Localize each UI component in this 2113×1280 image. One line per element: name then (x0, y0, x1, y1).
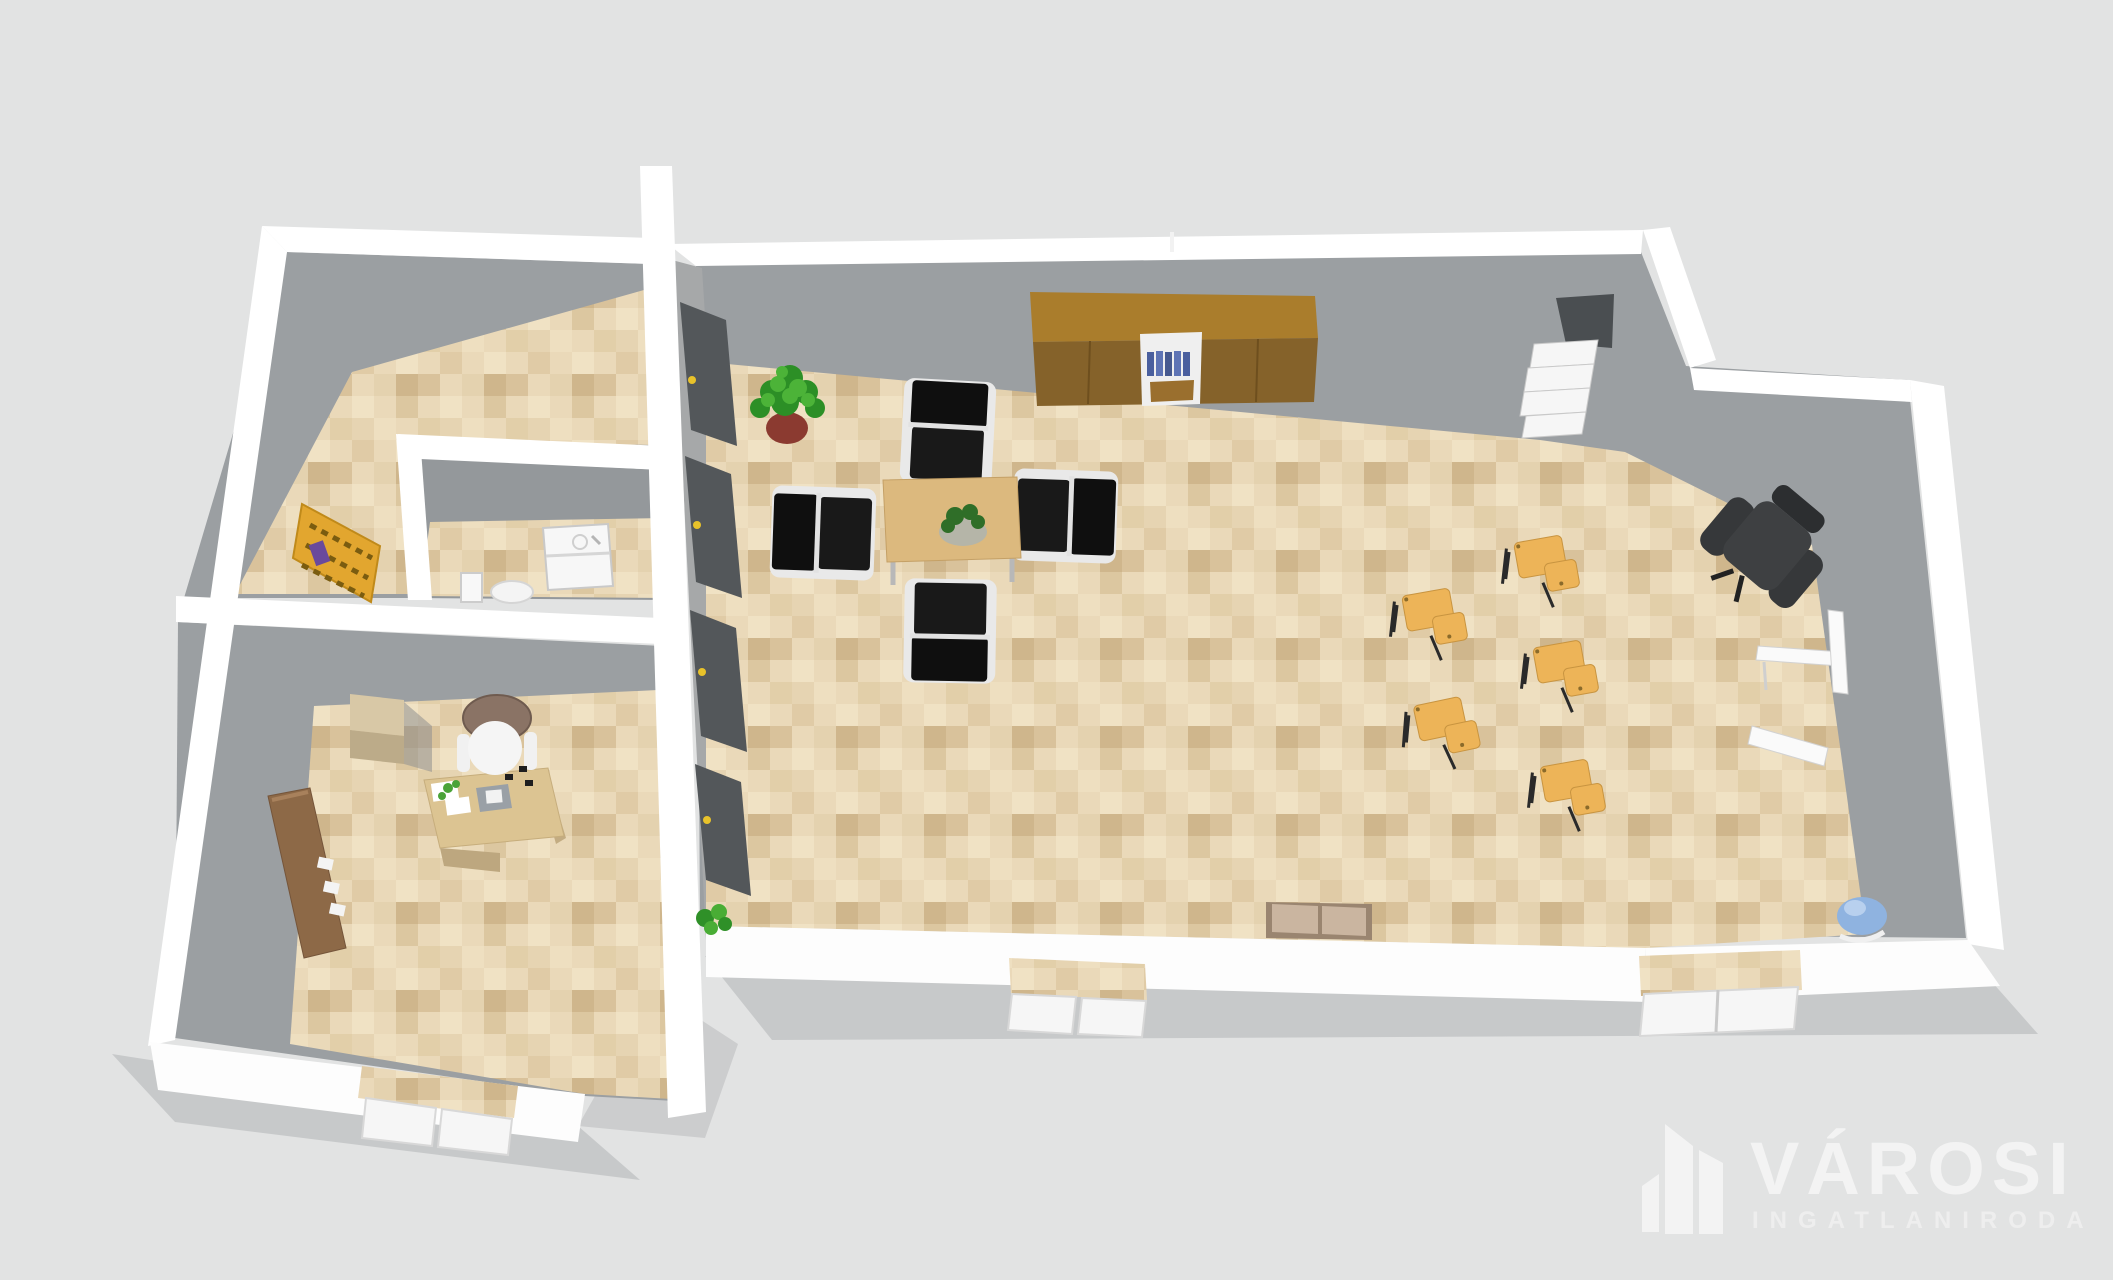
black-chair-west (769, 485, 876, 581)
brand-name: VÁROSI (1750, 1127, 2076, 1210)
small-wall-cabinet (461, 573, 482, 602)
floor-plan-render: VÁROSI INGATLANIRODA (0, 0, 2113, 1280)
desk-laptop (476, 784, 512, 812)
plant-pot (766, 412, 808, 444)
toilet (491, 581, 533, 603)
bookshelf-lower-shelf (1150, 380, 1194, 402)
floor-plan-screenshot: VÁROSI INGATLANIRODA (0, 0, 2113, 1280)
sofa (1266, 902, 1372, 940)
sink-vanity (543, 524, 613, 590)
brown-wardrobe-with-bookshelf (1030, 292, 1318, 406)
entry-door-seminar (1639, 950, 1802, 1036)
black-chair-south (903, 578, 997, 684)
black-chair-north (899, 378, 996, 487)
brand-subtitle: INGATLANIRODA (1752, 1207, 2095, 1234)
black-chair-east (1011, 468, 1118, 564)
blue-books (1147, 351, 1190, 376)
